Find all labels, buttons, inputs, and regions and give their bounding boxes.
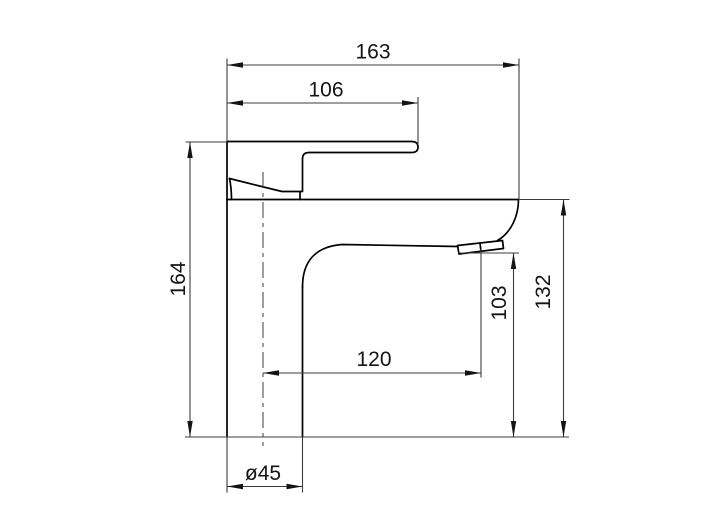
dimension-outlet-height: 103 — [460, 253, 519, 437]
arrowhead-left — [227, 484, 243, 489]
arrowhead-down — [561, 421, 566, 437]
dimension-lever-projection: 106 — [227, 79, 418, 146]
arrowhead-left — [227, 100, 243, 105]
dimension-total-projection: 163 — [227, 41, 519, 200]
arrowhead-right — [287, 484, 303, 489]
arrowhead-left — [227, 62, 243, 67]
arrowhead-up — [187, 142, 192, 158]
arrowhead-right — [402, 100, 418, 105]
dim-label-lever-projection: 106 — [308, 79, 343, 102]
arrowhead-down — [511, 421, 516, 437]
lever-handle-outline — [227, 142, 418, 192]
dim-label-base-diameter: ø45 — [245, 462, 281, 485]
dimension-spout-top-height: 132 — [519, 200, 570, 438]
dimension-base-diameter: ø45 — [227, 437, 303, 493]
dim-label-total-projection: 163 — [355, 41, 390, 64]
faucet-dimension-drawing: 163 106 164 132 103 120 — [0, 0, 717, 511]
dim-label-outlet-height: 103 — [488, 285, 511, 320]
arrowhead-up — [511, 253, 516, 269]
arrowhead-left — [263, 370, 279, 375]
spout-underside — [303, 245, 459, 288]
dimension-total-height: 164 — [167, 142, 227, 437]
arrowhead-down — [187, 421, 192, 437]
dim-label-spout-reach: 120 — [356, 348, 391, 371]
dimension-spout-reach: 120 — [263, 249, 481, 378]
body-top-and-spout-front — [227, 200, 519, 241]
handle-base-curve — [230, 179, 232, 200]
arrowhead-right — [503, 62, 519, 67]
arrowhead-up — [561, 200, 566, 216]
drawing-canvas: 163 106 164 132 103 120 — [0, 0, 717, 511]
dim-label-total-height: 164 — [167, 261, 190, 296]
dim-label-spout-top-height: 132 — [532, 274, 555, 309]
faucet-outline — [227, 142, 519, 438]
arrowhead-right — [465, 370, 481, 375]
